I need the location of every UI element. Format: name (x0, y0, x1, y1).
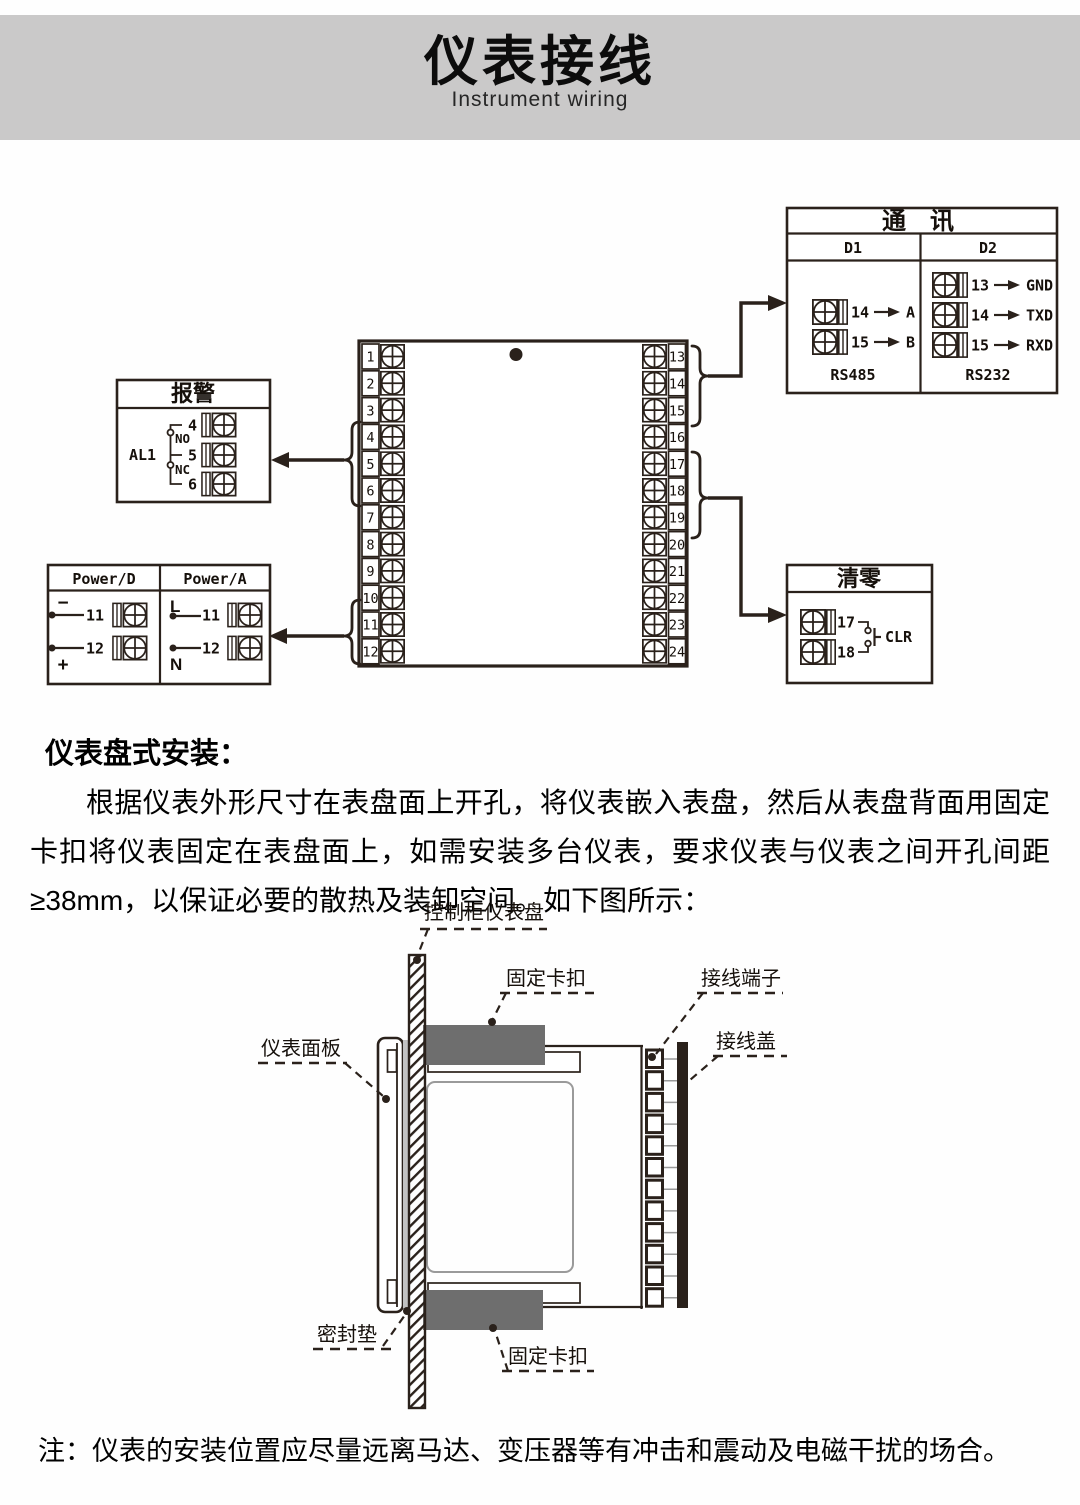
screw-terminal-icon (238, 603, 261, 626)
comm-terminal-number: 15 (851, 334, 869, 352)
screw-terminal-icon (643, 372, 666, 395)
comm-terminal-number: 14 (851, 304, 869, 322)
screw-terminal-icon (212, 472, 235, 495)
clamp-icon (959, 273, 967, 297)
clamp-icon (827, 610, 835, 634)
terminal-number: 2 (366, 377, 374, 393)
alarm-terminal-number: 4 (188, 417, 197, 435)
clear-terminal-number: 18 (837, 644, 855, 662)
fixing-clip-top (423, 1025, 545, 1065)
label-fixing-clip-bottom: 固定卡扣 (508, 1345, 588, 1368)
strip-terminal-cell (647, 1072, 663, 1090)
terminal-block-outline (359, 341, 687, 666)
screw-terminal-icon (801, 640, 825, 664)
screw-terminal-icon (643, 640, 666, 663)
power-terminal-number: 11 (86, 607, 104, 625)
clear-switch-label: CLR (885, 628, 913, 646)
strip-terminal-cell (647, 1115, 663, 1133)
strip-terminal-cell (647, 1159, 663, 1177)
clear-arrowhead-icon (768, 607, 787, 623)
screw-terminal-icon (381, 425, 404, 448)
install-figure: 控制柜仪表盘 固定卡扣 接线端子 接线盖 仪表面板 密封垫 固定卡扣 (0, 888, 1080, 1428)
strip-terminal-cell (647, 1267, 663, 1285)
terminal-number: 18 (669, 484, 685, 500)
wire-dot-icon (49, 645, 56, 652)
screw-terminal-icon (933, 333, 957, 357)
cabinet-panel-bar (409, 955, 425, 1408)
power-box: Power/D Power/A − 11 + 12 L 11 N 12 (48, 565, 270, 684)
terminal-number: 7 (366, 511, 374, 527)
terminal-strip-cells (647, 1050, 679, 1306)
clamp-icon (827, 640, 835, 664)
screw-terminal-icon (123, 603, 146, 626)
screw-terminal-icon (381, 613, 404, 636)
terminal-number: 11 (362, 618, 378, 634)
alarm-box: 报警 NO NC AL1 4 5 6 (117, 380, 270, 502)
clamp-icon (959, 303, 967, 327)
fixing-clip-bottom (423, 1290, 543, 1330)
terminal-number: 14 (669, 377, 685, 393)
screw-terminal-icon (381, 345, 404, 368)
comm-signal-label: RXD (1026, 337, 1053, 355)
terminal-number: 22 (669, 591, 685, 607)
page-subtitle: Instrument wiring (0, 88, 1080, 112)
clamp-icon (113, 636, 121, 659)
terminal-number: 20 (669, 537, 685, 553)
switch-contact-icon (865, 628, 871, 634)
orientation-dot-icon (510, 348, 523, 361)
terminal-number: 5 (366, 457, 374, 473)
clamp-icon (228, 603, 236, 626)
comm-signal-label: B (906, 334, 915, 352)
comm-title: 通 讯 (882, 208, 954, 235)
clamp-icon (202, 472, 210, 495)
alarm-relay-label: AL1 (129, 446, 156, 464)
callout-dot-icon (648, 1053, 656, 1061)
clamp-icon (228, 636, 236, 659)
label-cabinet-panel: 控制柜仪表盘 (424, 901, 544, 924)
comm-box: 通 讯 D1 D2 14 A 15 B 13 GND 14 TXD 15 RXD… (787, 208, 1057, 393)
alarm-terminal-number: 6 (188, 476, 197, 494)
terminal-number: 19 (669, 511, 685, 527)
clamp-icon (113, 603, 121, 626)
terminal-number: 1 (366, 350, 374, 366)
terminal-number: 15 (669, 403, 685, 419)
screw-terminal-icon (801, 610, 825, 634)
brace-comm (692, 346, 708, 426)
power-arrowhead-icon (269, 628, 287, 644)
screw-terminal-icon (643, 398, 666, 421)
terminal-number: 13 (669, 350, 685, 366)
instrument-case (425, 1046, 643, 1307)
clamp-icon (202, 443, 210, 466)
label-faceplate: 仪表面板 (261, 1037, 341, 1060)
comm-d2-label: D2 (979, 239, 997, 257)
comm-connection-line (708, 303, 770, 376)
power-sign: + (57, 655, 68, 676)
comm-terminal-number: 13 (971, 277, 989, 295)
terminal-block: 123456789101112131415161718192021222324 (359, 341, 687, 666)
wiring-diagram: 123456789101112131415161718192021222324 … (0, 200, 1080, 700)
faceplate-slot (388, 1280, 397, 1303)
screw-terminal-icon (381, 452, 404, 475)
screw-terminal-icon (381, 506, 404, 529)
clamp-icon (839, 300, 847, 324)
comm-signal-label: GND (1026, 277, 1053, 295)
strip-terminal-cell (647, 1093, 663, 1111)
screw-terminal-icon (643, 506, 666, 529)
power-sign: − (57, 593, 68, 614)
screw-terminal-icon (933, 303, 957, 327)
callout-dot-icon (403, 1307, 411, 1315)
wire-dot-icon (49, 612, 56, 619)
screw-terminal-icon (813, 330, 837, 354)
screw-terminal-icon (643, 559, 666, 582)
strip-terminal-cell (647, 1224, 663, 1242)
callout-dot-icon (382, 1095, 390, 1103)
screw-terminal-icon (643, 613, 666, 636)
power-terminal-number: 12 (86, 640, 104, 658)
strip-terminal-cell (647, 1245, 663, 1263)
switch-contact-icon (865, 641, 871, 647)
terminal-number: 6 (366, 484, 374, 500)
strip-terminal-cell (647, 1137, 663, 1155)
label-fixing-clip-top: 固定卡扣 (506, 967, 586, 990)
faceplate-slot (388, 1050, 397, 1072)
label-wiring-terminals: 接线端子 (701, 967, 781, 990)
clamp-icon (959, 333, 967, 357)
relay-no-contact-icon (168, 430, 174, 436)
screw-terminal-icon (813, 300, 837, 324)
screw-terminal-icon (381, 559, 404, 582)
screw-terminal-icon (381, 640, 404, 663)
terminal-number: 12 (362, 645, 378, 661)
clear-title: 清零 (837, 566, 882, 591)
screw-terminal-icon (381, 586, 404, 609)
strip-terminal-cell (647, 1202, 663, 1220)
clear-connection-line (708, 498, 770, 615)
brace-clear (692, 452, 708, 538)
terminal-number: 17 (669, 457, 685, 473)
terminal-number: 8 (366, 537, 374, 553)
label-sealing-gasket: 密封垫 (317, 1323, 377, 1346)
terminal-number: 21 (669, 564, 685, 580)
clear-terminal-number: 17 (837, 614, 855, 632)
comm-bus-rs232: RS232 (965, 366, 1010, 384)
page-banner: 仪表接线 Instrument wiring (0, 15, 1080, 140)
comm-signal-label: TXD (1026, 307, 1053, 325)
power-sign: N (170, 655, 182, 674)
screw-terminal-icon (123, 636, 146, 659)
alarm-title: 报警 (171, 381, 215, 406)
alarm-terminal-number: 5 (188, 447, 197, 465)
screw-terminal-icon (933, 273, 957, 297)
comm-d1-label: D1 (844, 239, 862, 257)
clamp-icon (202, 413, 210, 436)
comm-terminal-number: 14 (971, 307, 989, 325)
relay-nc-contact-icon (168, 462, 174, 468)
screw-terminal-icon (643, 425, 666, 448)
screw-terminal-icon (381, 372, 404, 395)
callout-dot-icon (489, 1324, 497, 1332)
alarm-arrowhead-icon (271, 452, 289, 468)
faceplate (378, 1038, 403, 1312)
install-heading: 仪表盘式安装： (45, 730, 248, 772)
screw-terminal-icon (643, 532, 666, 555)
power-terminal-number: 12 (202, 640, 220, 658)
screw-terminal-icon (643, 586, 666, 609)
install-note: 注：仪表的安装位置应尽量远离马达、变压器等有冲击和震动及电磁干扰的场合。 (38, 1429, 1010, 1468)
terminal-number: 16 (669, 430, 685, 446)
comm-terminal-number: 15 (971, 337, 989, 355)
screw-terminal-icon (212, 413, 235, 436)
screw-terminal-icon (643, 452, 666, 475)
power-d-label: Power/D (72, 570, 135, 588)
wire-dot-icon (170, 645, 177, 652)
callout-dot-icon (488, 1018, 496, 1026)
clear-box: 清零 17 18 CLR (787, 565, 932, 683)
screw-terminal-icon (381, 479, 404, 502)
comm-arrowhead-icon (768, 295, 787, 311)
wire-dot-icon (170, 613, 177, 620)
page-title: 仪表接线 (0, 15, 1080, 92)
screw-terminal-icon (381, 398, 404, 421)
terminal-strip (642, 1042, 689, 1309)
strip-terminal-cell (647, 1180, 663, 1198)
terminal-number: 10 (362, 591, 378, 607)
faceplate-outline (378, 1038, 403, 1312)
comm-signal-label: A (906, 304, 915, 322)
clamp-icon (839, 330, 847, 354)
comm-bus-rs485: RS485 (830, 366, 875, 384)
power-terminal-number: 11 (202, 607, 220, 625)
screw-terminal-icon (212, 443, 235, 466)
power-a-label: Power/A (183, 570, 246, 588)
terminal-number: 24 (669, 645, 685, 661)
case-inner-outline (427, 1082, 573, 1272)
terminal-number: 4 (366, 430, 374, 446)
screw-terminal-icon (381, 532, 404, 555)
screw-terminal-icon (643, 345, 666, 368)
strip-terminal-cell (647, 1289, 663, 1307)
screw-terminal-icon (238, 636, 261, 659)
label-wiring-cover: 接线盖 (716, 1030, 776, 1053)
terminal-number: 9 (366, 564, 374, 580)
terminal-number: 3 (366, 403, 374, 419)
screw-terminal-icon (643, 479, 666, 502)
callout-dot-icon (413, 956, 421, 964)
wiring-cover-bar (677, 1042, 688, 1308)
terminal-number: 23 (669, 618, 685, 634)
